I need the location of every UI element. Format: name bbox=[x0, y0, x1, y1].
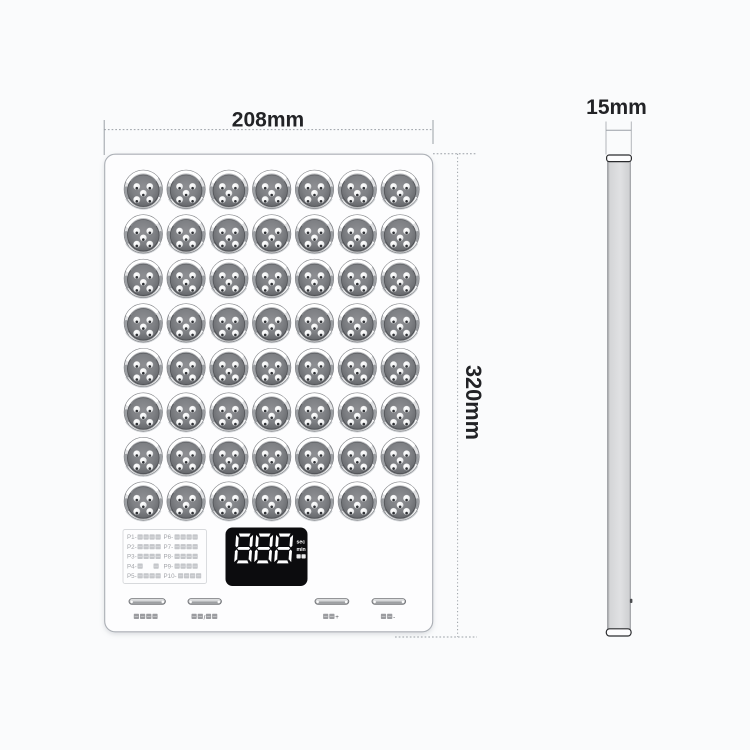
svg-text:320mm: 320mm bbox=[461, 365, 486, 440]
svg-text:P10-: P10- bbox=[164, 573, 177, 580]
svg-text:208mm: 208mm bbox=[232, 109, 304, 132]
svg-text:P4-: P4- bbox=[127, 563, 137, 570]
svg-text:P2-: P2- bbox=[127, 544, 137, 551]
svg-text:-: - bbox=[393, 614, 395, 621]
svg-text:P7-: P7- bbox=[164, 544, 174, 551]
svg-text:15mm: 15mm bbox=[586, 96, 647, 119]
svg-text:P9-: P9- bbox=[164, 563, 174, 570]
svg-text:min: min bbox=[297, 547, 306, 553]
svg-text:P1-: P1- bbox=[127, 534, 137, 541]
svg-text:P8-: P8- bbox=[164, 554, 174, 561]
svg-text:P5-: P5- bbox=[127, 573, 137, 580]
svg-text:P6-: P6- bbox=[164, 534, 174, 541]
svg-text:sec: sec bbox=[297, 540, 306, 546]
svg-text:+: + bbox=[335, 614, 339, 621]
svg-text:P3-: P3- bbox=[127, 554, 137, 561]
